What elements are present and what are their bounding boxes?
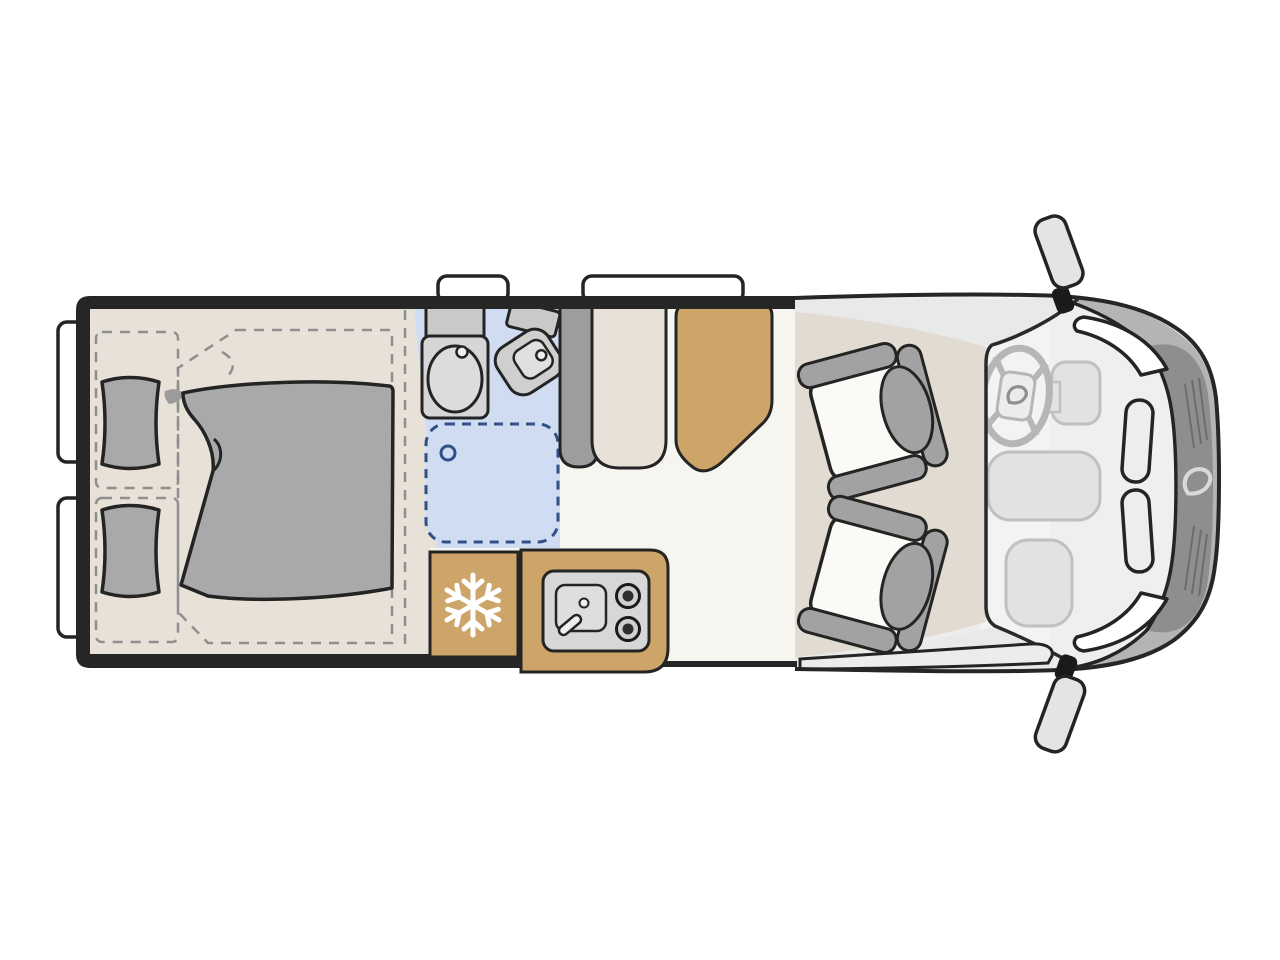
kitchen-block <box>430 550 668 672</box>
floorplan-canvas: Camper van floor plan (top view) Top-dow… <box>0 0 1280 960</box>
shower-icon <box>426 424 558 542</box>
side-mirror-icon <box>1032 673 1088 755</box>
headlight-icon <box>1121 489 1154 573</box>
side-mirror-icon <box>1032 213 1087 292</box>
basin-faucet-icon <box>457 347 468 358</box>
pillow <box>102 378 159 469</box>
pillow <box>102 506 159 597</box>
floorplan-svg <box>0 0 1280 960</box>
duvet <box>181 382 393 599</box>
sink-drain-icon <box>580 599 589 608</box>
washbasin-icon <box>428 346 482 412</box>
headlight-icon <box>1121 399 1154 483</box>
rear-bed-area <box>89 308 437 655</box>
dinette-bench <box>592 305 666 468</box>
bathroom <box>414 300 569 548</box>
sill-line <box>648 661 797 667</box>
